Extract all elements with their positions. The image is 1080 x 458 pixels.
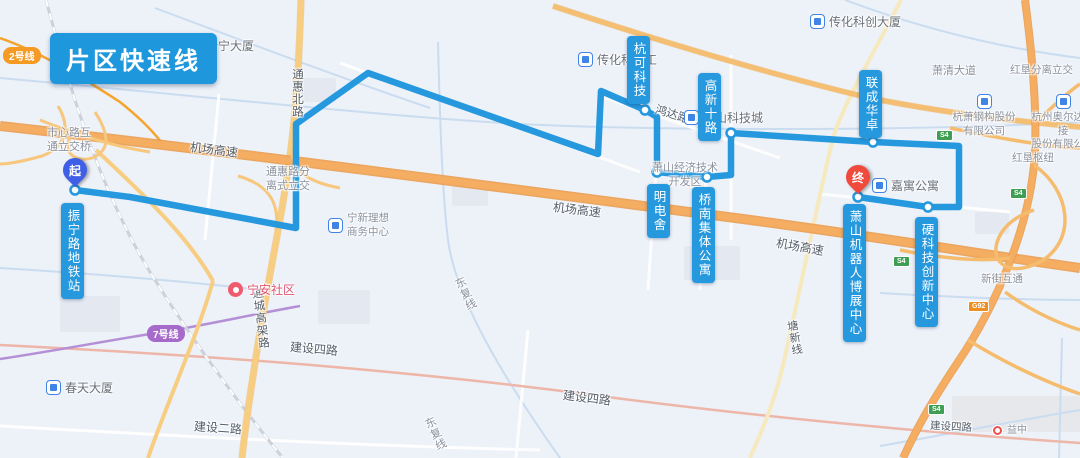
poi-ningan-community[interactable]: 宁安社区	[228, 281, 295, 298]
poi-label: 传化科创大厦	[829, 13, 901, 30]
building-icon	[872, 178, 887, 193]
building-icon	[684, 110, 699, 125]
building-icon	[328, 218, 343, 233]
poi-jiayu-apartment[interactable]: 嘉寓公寓	[872, 177, 939, 194]
road-shield-g92: G92	[968, 301, 989, 312]
poi-label: 益中	[1007, 424, 1027, 437]
poi-label-line2: 有限公司	[963, 125, 1005, 139]
poi-chuntian-tower[interactable]: 春天大厦	[46, 379, 113, 396]
road-label-shixin-interchange: 市心路互通立交桥	[45, 127, 93, 155]
road-label-hongken-interchange: 红垦分离立交	[1010, 62, 1073, 77]
poi-hangxiao-steel[interactable]: 杭萧钢构股份 有限公司	[948, 94, 1020, 138]
poi-chuanhua-tower[interactable]: 传化科创大厦	[810, 13, 901, 30]
road-label-xiaoqing: 萧清大道	[932, 62, 976, 78]
community-icon	[228, 282, 243, 297]
road-label-hongken-hub: 红垦枢纽	[1012, 150, 1054, 165]
station-label-qiaonan-apartments[interactable]: 桥南集体公寓	[692, 187, 715, 283]
poi-label: 嘉寓公寓	[891, 177, 939, 194]
poi-aoerda-welding[interactable]: 杭州奥尔达焊接 股份有限公司	[1028, 94, 1080, 152]
route-end-pin-label: 终	[846, 165, 870, 189]
poi-label: 春天大厦	[65, 379, 113, 396]
route-start-pin-label: 起	[63, 158, 87, 182]
road-shield-s4-2: S4	[1010, 188, 1027, 199]
road-shield-s4-1: S4	[893, 256, 910, 267]
road-label-jianshe4-3: 建设四路	[930, 418, 973, 435]
station-label-mingdianshe[interactable]: 明电舍	[647, 184, 670, 238]
poi-yizhong[interactable]: 益中	[992, 424, 1027, 437]
building-icon	[578, 52, 593, 67]
road-label-tonghui-interchange: 通惠路分离式立交	[264, 166, 312, 194]
station-label-zhenninglu-metro[interactable]: 振宁路地铁站	[61, 203, 84, 299]
map-screenshot: { "app": { "title_badge": "片区快速线" }, "ro…	[0, 0, 1080, 458]
station-label-robot-expo-center[interactable]: 萧山机器人博展中心	[843, 204, 866, 342]
school-icon	[992, 425, 1003, 436]
poi-label: 宁安社区	[247, 281, 295, 298]
poi-ningxin-business-center[interactable]: 宁新理想 商务中心	[328, 212, 389, 239]
station-label-gaoxin-10th-rd[interactable]: 高新十路	[698, 73, 721, 141]
building-icon	[46, 380, 61, 395]
route-title-badge: 片区快速线	[50, 33, 217, 84]
poi-label-line2: 商务中心	[347, 226, 389, 240]
road-label-tonghui-north: 通惠北路	[289, 68, 305, 118]
poi-label-line1: 宁新理想	[347, 212, 389, 226]
building-icon	[1056, 94, 1071, 109]
poi-label-line2: 股份有限公司	[1032, 138, 1080, 152]
building-icon	[977, 94, 992, 109]
station-label-liancheng-huazhuo[interactable]: 联成华卓	[859, 70, 882, 138]
metro-line7-badge: 7号线	[147, 325, 185, 342]
station-label-hard-tech-center[interactable]: 硬科技创新中心	[915, 217, 938, 327]
poi-label-line1: 杭州奥尔达焊接	[1028, 111, 1080, 138]
poi-xiaoshan-tech-city[interactable]: 萧山科技城	[684, 109, 763, 126]
road-shield-s4-3: S4	[928, 404, 945, 415]
road-label-xinjie: 新街互通	[981, 271, 1023, 286]
station-label-hangke-tech[interactable]: 杭可科技	[627, 36, 650, 104]
metro-line2-badge: 2号线	[3, 47, 41, 64]
route-start-pin[interactable]: 起	[58, 153, 92, 187]
road-label-jianshe2: 建设二路	[193, 417, 242, 437]
poi-label-line1: 杭萧钢构股份	[953, 111, 1016, 125]
building-icon	[810, 14, 825, 29]
route-end-pin[interactable]: 终	[841, 160, 875, 194]
